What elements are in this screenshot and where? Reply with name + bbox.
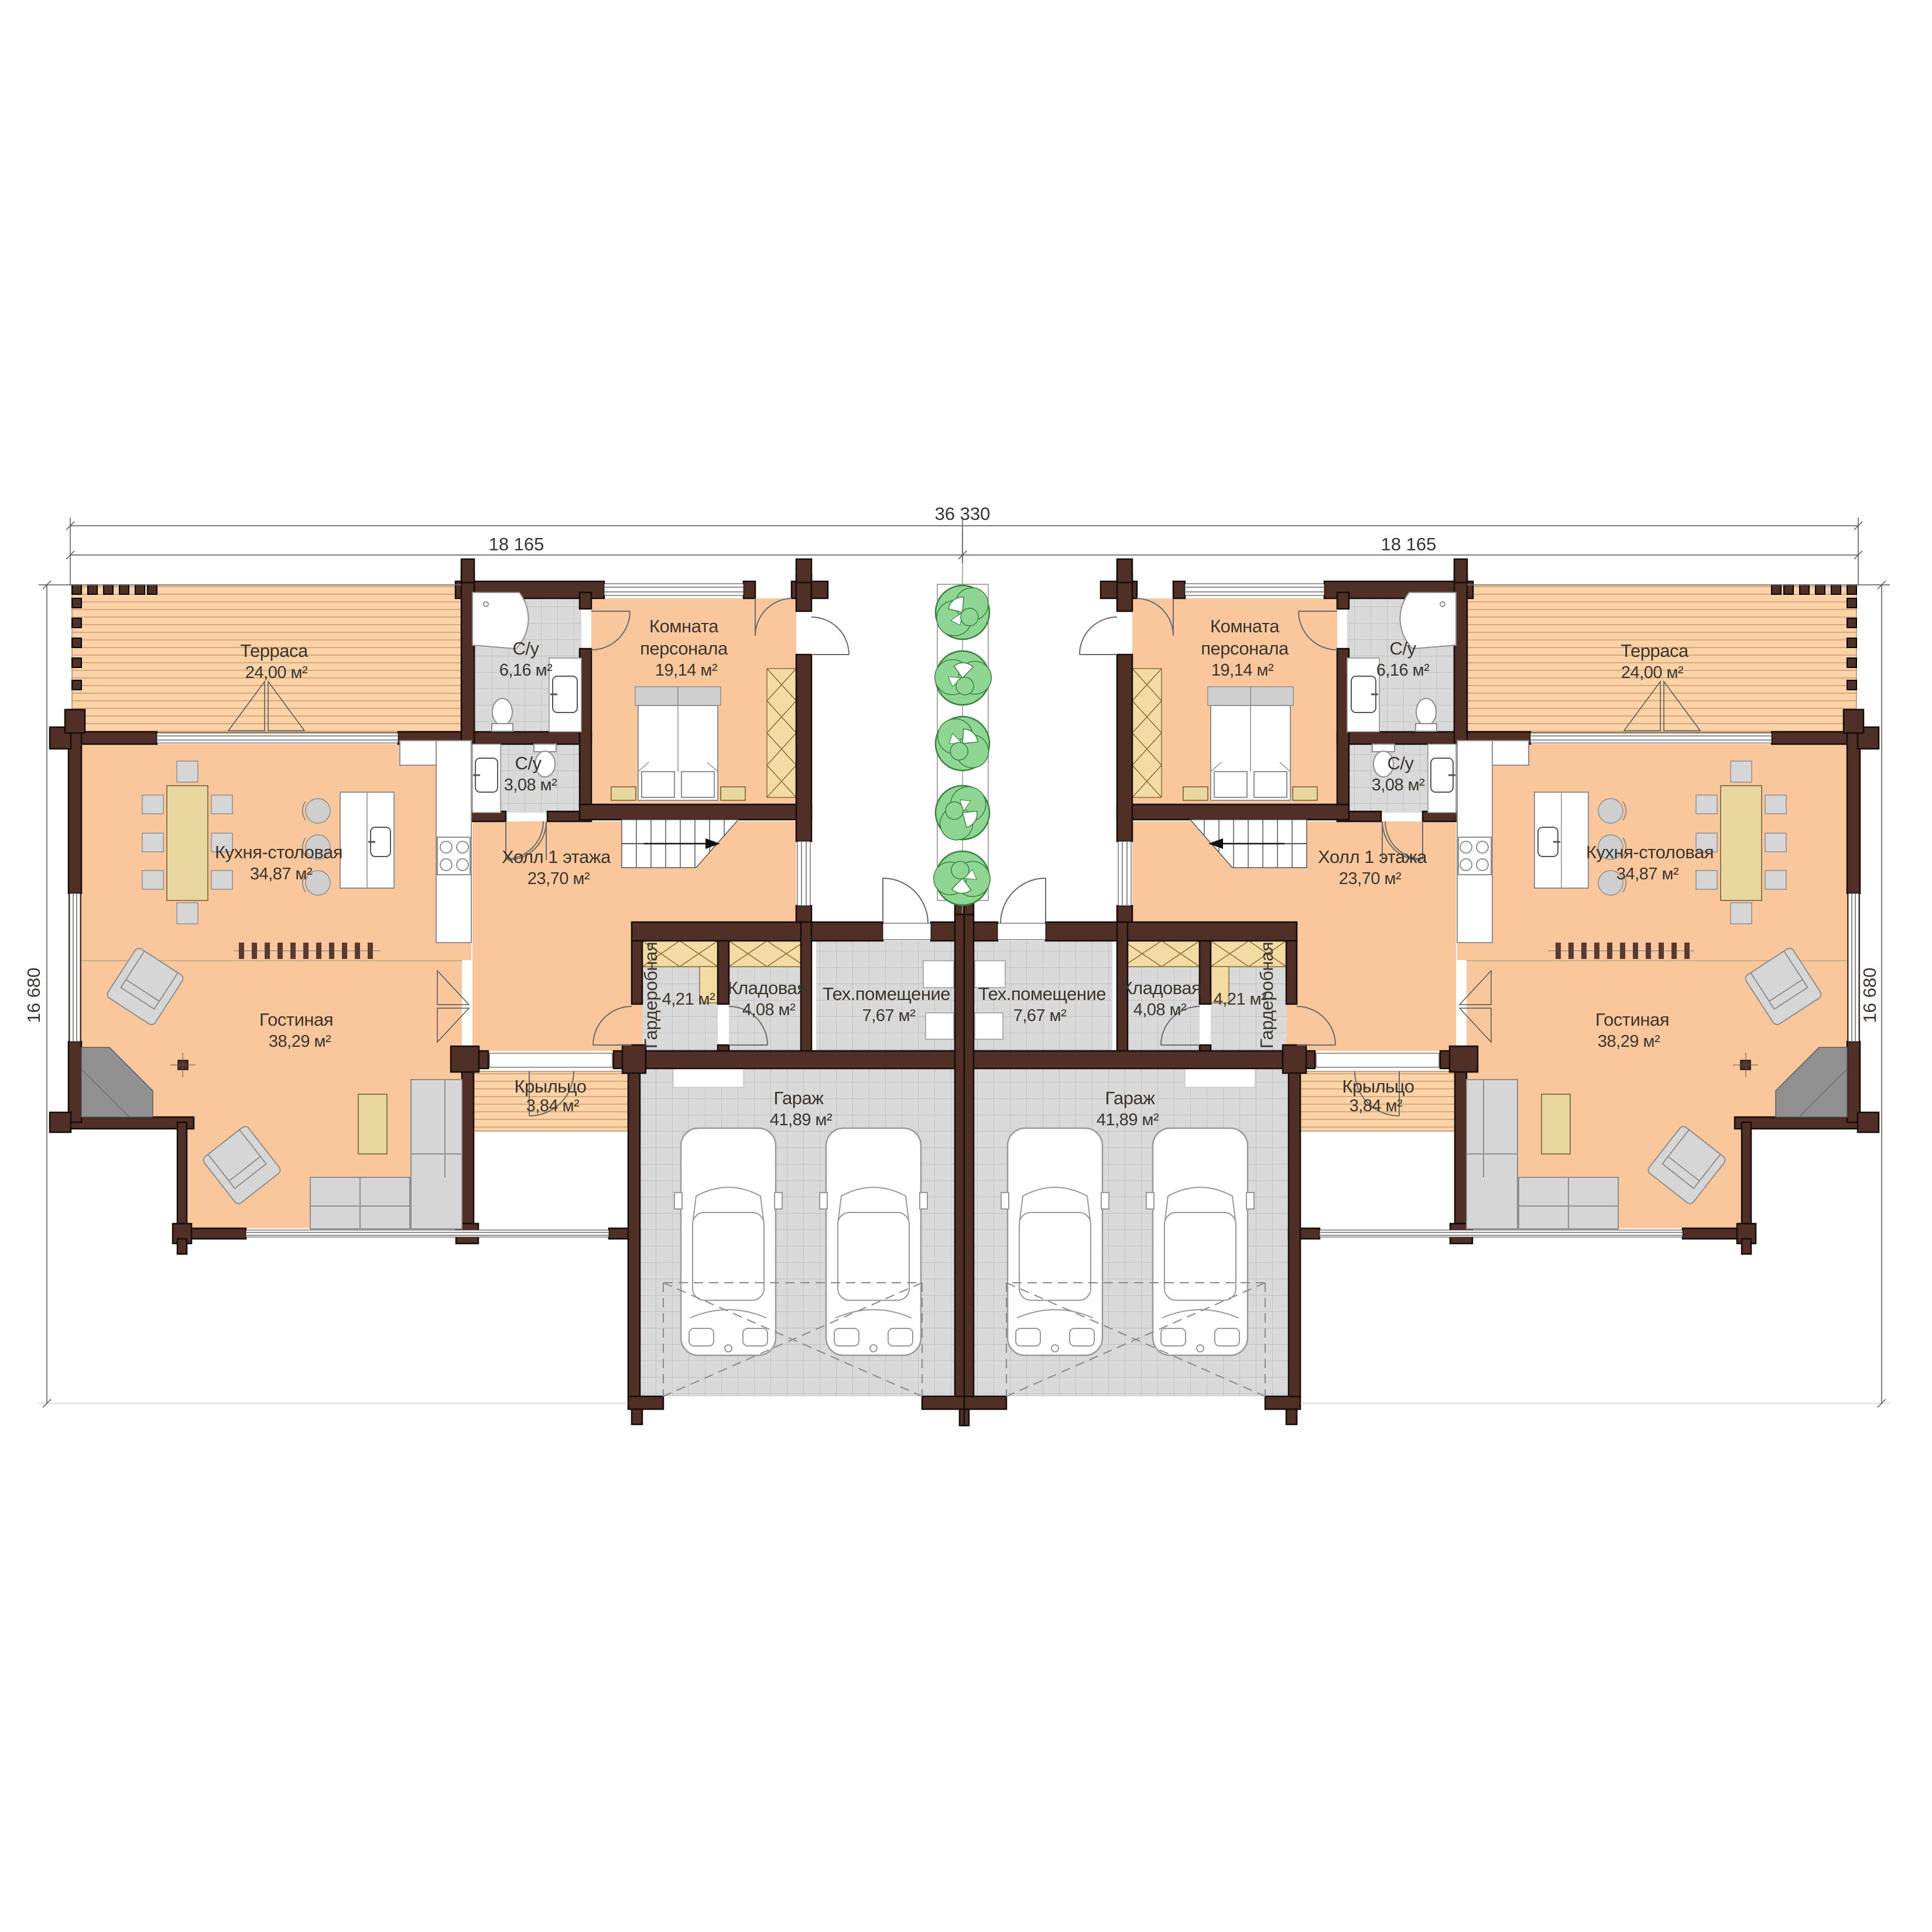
label-kitchen: Кухня-столовая: [215, 842, 342, 862]
svg-text:4,08 м²: 4,08 м²: [742, 1001, 796, 1019]
garage-landing: [673, 1068, 744, 1087]
center-walkway: [924, 530, 1001, 916]
svg-text:24,00 м²: 24,00 м²: [245, 663, 308, 682]
svg-text:3,84 м²: 3,84 м²: [1349, 1097, 1403, 1115]
svg-text:41,89 м²: 41,89 м²: [1097, 1111, 1159, 1129]
label-storage-right: Кладовая: [1122, 978, 1201, 998]
label-porch-right: Крыльцо: [1342, 1076, 1414, 1097]
dim-side-left: 16 680: [23, 968, 44, 1023]
svg-text:4,21 м²: 4,21 м²: [662, 990, 715, 1009]
label-terrace: Терраса: [240, 640, 309, 661]
svg-text:41,89 м²: 41,89 м²: [770, 1111, 833, 1129]
svg-text:3,84 м²: 3,84 м²: [526, 1097, 580, 1115]
svg-text:38,29 м²: 38,29 м²: [1598, 1032, 1660, 1051]
label-hall-right: Холл 1 этажа: [1318, 847, 1427, 867]
dim-total: 36 330: [935, 503, 991, 524]
svg-text:4,08 м²: 4,08 м²: [1133, 1001, 1187, 1019]
svg-text:34,87 м²: 34,87 м²: [1616, 865, 1679, 883]
label-bath-small: С/у: [515, 753, 542, 773]
svg-text:24,00 м²: 24,00 м²: [1621, 663, 1684, 682]
svg-text:7,67 м²: 7,67 м²: [862, 1006, 916, 1025]
label-terrace-right: Терраса: [1621, 640, 1689, 661]
label-hall: Холл 1 этажа: [502, 847, 611, 867]
svg-text:23,70 м²: 23,70 м²: [527, 869, 590, 888]
dining-table: [167, 786, 208, 900]
label-tech-right: Тех.помещение: [978, 984, 1106, 1004]
floor-plan-page: 36 330 18 165 18 165 16 680 16 680 Терра…: [0, 0, 1932, 1932]
svg-text:персонала: персонала: [1201, 638, 1289, 659]
label-storage: Кладовая: [728, 978, 807, 998]
label-porch: Крыльцо: [515, 1076, 587, 1097]
svg-text:6,16 м²: 6,16 м²: [1376, 661, 1430, 680]
coffee-table: [358, 1094, 387, 1154]
label-living-right: Гостиная: [1595, 1009, 1669, 1030]
svg-text:7,67 м²: 7,67 м²: [1013, 1006, 1067, 1025]
label-garage: Гараж: [773, 1088, 824, 1108]
label-garage-right: Гараж: [1105, 1088, 1155, 1108]
dim-right-half: 18 165: [1381, 534, 1437, 554]
svg-text:23,70 м²: 23,70 м²: [1339, 869, 1402, 888]
label-tech: Тех.помещение: [823, 984, 950, 1004]
toilet-large-bath: [492, 698, 512, 725]
label-staff-room-right: Комната: [1210, 616, 1280, 636]
label-bath-small-right: С/у: [1388, 753, 1414, 773]
svg-text:3,08 м²: 3,08 м²: [504, 776, 557, 794]
label-bath-large-right: С/у: [1390, 638, 1417, 659]
label-living: Гостиная: [259, 1009, 333, 1030]
label-wardrobe: Гардеробная: [640, 942, 661, 1049]
label-bath-large: С/у: [513, 638, 540, 659]
svg-text:38,29 м²: 38,29 м²: [269, 1032, 331, 1051]
svg-text:3,08 м²: 3,08 м²: [1372, 776, 1425, 794]
svg-text:4,21 м²: 4,21 м²: [1214, 990, 1267, 1009]
svg-text:34,87 м²: 34,87 м²: [250, 865, 313, 883]
dim-side-right: 16 680: [1859, 968, 1880, 1023]
svg-text:19,14 м²: 19,14 м²: [1211, 661, 1274, 680]
svg-text:персонала: персонала: [640, 638, 728, 659]
dim-left-half: 18 165: [489, 534, 544, 554]
svg-text:6,16 м²: 6,16 м²: [499, 661, 553, 680]
floor-plan-drawing: 36 330 18 165 18 165 16 680 16 680 Терра…: [0, 0, 1932, 1932]
svg-text:19,14 м²: 19,14 м²: [655, 661, 718, 680]
label-kitchen-right: Кухня-столовая: [1586, 842, 1714, 862]
label-staff-room: Комната: [649, 616, 719, 636]
